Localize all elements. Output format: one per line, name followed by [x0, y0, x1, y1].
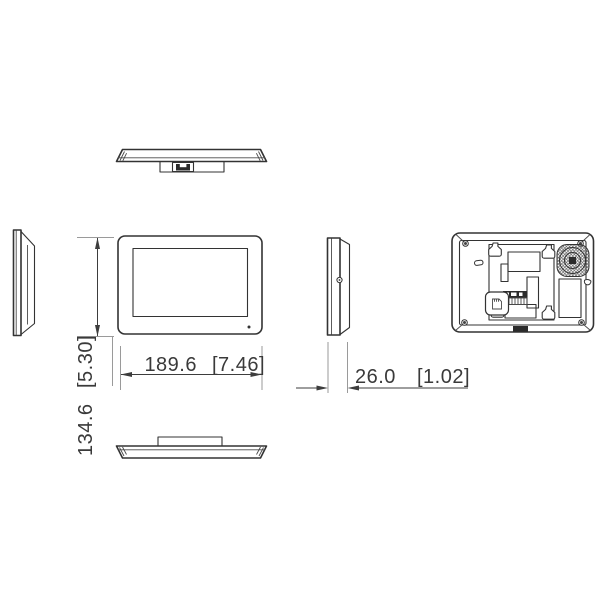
bottom-view	[117, 437, 267, 458]
height-dimension-inches-label: [5.30]	[75, 335, 97, 388]
hanging-hole-icon	[584, 279, 591, 284]
right-side-view	[328, 238, 350, 335]
corner-tick-bl	[456, 325, 463, 331]
right-side-back-profile	[340, 239, 350, 335]
screen	[133, 249, 248, 317]
cable-connector-notch	[180, 164, 187, 167]
depth-dimension-mm-label: 26.0	[355, 366, 396, 388]
speaker-grille-icon	[557, 245, 589, 277]
arrowhead	[95, 325, 100, 337]
component-box-left	[501, 264, 508, 282]
front-view	[118, 236, 262, 334]
bottom-view-mounting-bracket	[158, 437, 222, 446]
component-box-center	[527, 277, 539, 308]
component-box-right	[559, 279, 581, 318]
depth-dimension: 26.0 [1.02]	[296, 342, 470, 393]
arrowhead	[121, 372, 133, 377]
width-dimension-mm-label: 189.6	[144, 354, 197, 376]
top-view-body	[117, 150, 267, 162]
width-dimension-inches-label: [7.46]	[212, 354, 265, 376]
corner-tick-br	[584, 325, 591, 331]
height-dimension-mm-label: 134.6	[75, 403, 97, 456]
left-side-front-edge	[14, 230, 22, 336]
arrowhead	[317, 386, 329, 391]
screw-hole-dot	[339, 279, 341, 281]
mic-hole-icon	[248, 326, 251, 329]
corner-screw-icon	[463, 241, 469, 247]
depth-dimension-inches-label: [1.02]	[417, 366, 470, 388]
arrowhead	[95, 238, 100, 250]
front-bezel	[118, 236, 262, 334]
bottom-connector-notch	[513, 326, 528, 332]
sd-card-slot-icon	[486, 292, 509, 315]
left-side-view	[14, 230, 35, 336]
height-dimension: 134.6 [5.30]	[75, 238, 114, 457]
technical-drawing: 189.6 [7.46] 134.6 [5.30] 26.0 [1.02]	[0, 0, 604, 604]
component-box-bottom	[505, 305, 536, 319]
width-dimension: 189.6 [7.46]	[113, 337, 266, 390]
bottom-view-body	[117, 446, 267, 458]
corner-screw-icon	[579, 320, 585, 326]
extension-line	[328, 342, 348, 393]
component-box-top	[508, 252, 540, 272]
corner-screw-icon	[462, 320, 468, 326]
keyhole-mount-slot-icon	[542, 306, 555, 319]
right-side-front-edge	[328, 238, 341, 335]
back-view	[452, 233, 594, 332]
cable-slot-icon	[474, 260, 483, 266]
keyhole-mount-slot-icon	[542, 245, 555, 258]
corner-tick-tr	[583, 235, 591, 242]
top-view-mounting-bracket	[160, 162, 224, 173]
extension-tick	[77, 238, 114, 337]
top-view	[117, 150, 267, 173]
